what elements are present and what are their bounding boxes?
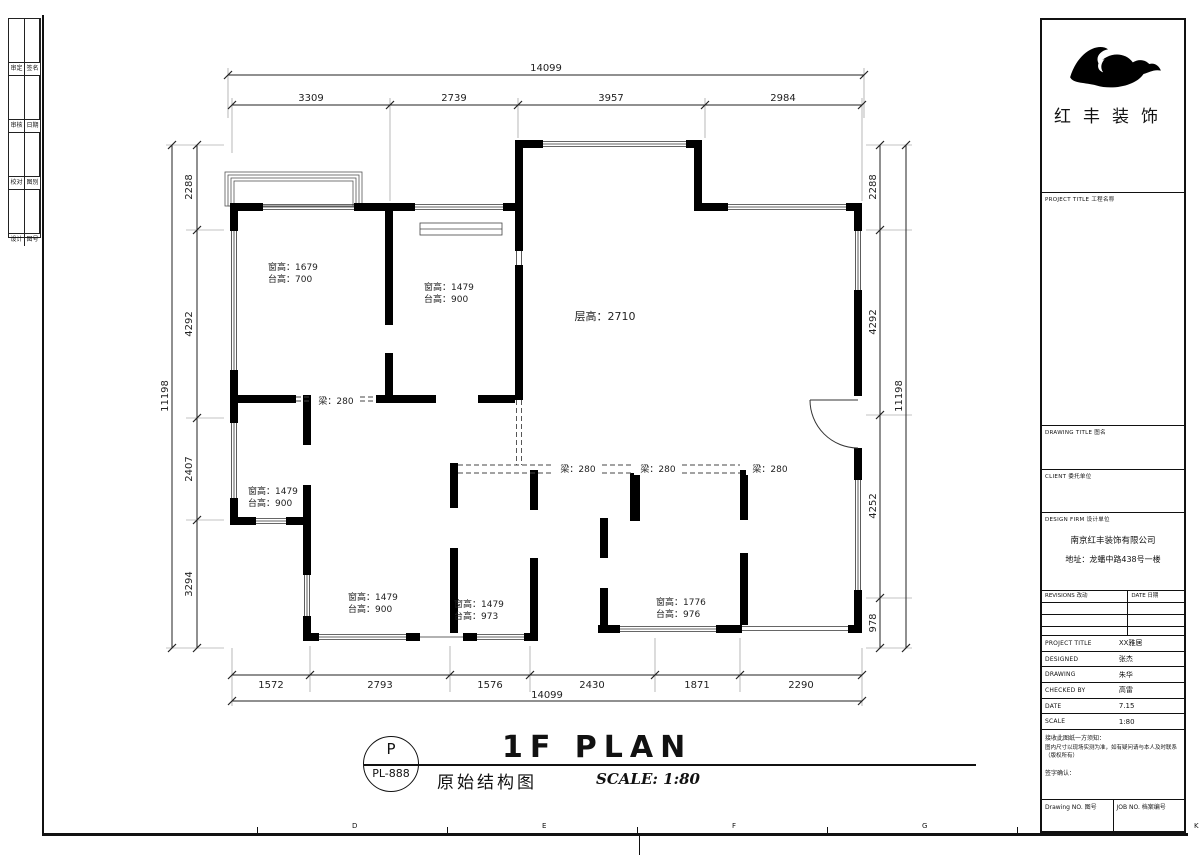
dim-top-1: 2739 bbox=[441, 93, 466, 104]
dim-bottom-3: 2430 bbox=[579, 680, 604, 691]
dim-left-3: 3294 bbox=[184, 571, 195, 596]
title-block: 红丰装饰 PROJECT TITLE 工程名称 DRAWING TITLE 图名… bbox=[1040, 18, 1186, 833]
windows bbox=[232, 142, 861, 640]
design-firm-label: DESIGN FIRM 设计单位 bbox=[1042, 513, 1184, 525]
info-row-label: PROJECT TITLE bbox=[1042, 640, 1119, 647]
room-note-2-l1: 窗高：1479 bbox=[248, 485, 298, 497]
beam-label-2: 梁：280 bbox=[640, 463, 675, 475]
logo-text: 红丰装饰 bbox=[1042, 106, 1180, 129]
dim-top-3: 2984 bbox=[770, 93, 795, 104]
dim-right-overall: 11198 bbox=[894, 380, 905, 412]
info-row-label: DRAWING bbox=[1042, 671, 1119, 678]
dim-bottom-overall: 14099 bbox=[531, 690, 563, 701]
edge-tick bbox=[257, 827, 258, 833]
dim-bottom-0: 1572 bbox=[258, 680, 283, 691]
strip-cell: 图号 bbox=[25, 234, 40, 246]
info-row-value: 高雷 bbox=[1119, 685, 1184, 695]
strip-cell: 图别 bbox=[25, 177, 40, 189]
job-no-label: JOB NO. 档案编号 bbox=[1114, 800, 1185, 831]
room-note-2-l2: 台高：900 bbox=[248, 497, 292, 509]
strip-cell: 签名 bbox=[25, 63, 40, 75]
floor-height-label: 层高：2710 bbox=[575, 309, 636, 323]
dim-right-1: 4292 bbox=[868, 309, 879, 334]
grid-letter: G bbox=[922, 822, 927, 830]
edge-tick bbox=[447, 827, 448, 833]
dim-left-0: 2288 bbox=[184, 174, 195, 199]
walls bbox=[230, 140, 862, 641]
numbers-section: Drawing NO. 图号 JOB NO. 档案编号 bbox=[1042, 800, 1184, 831]
room-note-1-l2: 台高：900 bbox=[424, 293, 468, 305]
dim-left-2: 2407 bbox=[184, 456, 195, 481]
fold-strip-table: 审定签名 审核日期 校对图别 设计图号 bbox=[8, 18, 41, 238]
stamp-number: PL-888 bbox=[364, 761, 418, 787]
dim-top-0: 3309 bbox=[298, 93, 323, 104]
dim-bottom-4: 1871 bbox=[684, 680, 709, 691]
balcony-lines bbox=[225, 172, 362, 206]
drawing-name-cn: 原始结构图 bbox=[437, 768, 537, 793]
room-note-4-l2: 台高：973 bbox=[454, 610, 498, 622]
dim-bottom-5: 2290 bbox=[788, 680, 813, 691]
strip-cell: 审定 bbox=[9, 63, 25, 75]
sheet-bottom-border bbox=[42, 833, 1188, 836]
beam-dashed-lines bbox=[296, 397, 740, 473]
info-row-label: CHECKED BY bbox=[1042, 687, 1119, 694]
stamp-letter: P bbox=[364, 737, 418, 761]
beam-label-3: 梁：280 bbox=[752, 463, 787, 475]
info-row-value: 张杰 bbox=[1119, 654, 1184, 664]
drawing-sheet: 审定签名 审核日期 校对图别 设计图号 D E F G H K bbox=[0, 0, 1200, 856]
strip-cell: 校对 bbox=[9, 177, 25, 189]
edge-tick bbox=[637, 827, 638, 833]
room-notes: 窗高：1679 台高：700 窗高：1479 台高：900 窗高：1479 台高… bbox=[248, 261, 706, 622]
company-address: 地址：龙蟠中路438号一楼 bbox=[1042, 554, 1184, 565]
plan-title: 1F PLAN bbox=[502, 730, 692, 765]
info-row-value: XX雅居 bbox=[1119, 638, 1184, 648]
grid-letter: F bbox=[732, 822, 736, 830]
room-note-4-l1: 窗高：1479 bbox=[454, 598, 504, 610]
design-firm-section: DESIGN FIRM 设计单位 南京红丰装饰有限公司 地址：龙蟠中路438号一… bbox=[1042, 513, 1184, 591]
info-row: CHECKED BY 高雷 bbox=[1042, 683, 1184, 699]
room-note-0-l2: 台高：700 bbox=[268, 273, 312, 285]
info-row: DESIGNED 张杰 bbox=[1042, 652, 1184, 668]
room-note-5-l1: 窗高：1776 bbox=[656, 596, 706, 608]
project-title-section: PROJECT TITLE 工程名称 bbox=[1042, 193, 1184, 426]
room-note-0-l1: 窗高：1679 bbox=[268, 261, 318, 273]
room-note-5-l2: 台高：976 bbox=[656, 608, 700, 620]
note-line-1: 接收此图纸一方须知： bbox=[1045, 733, 1181, 742]
info-row: DRAWING 朱华 bbox=[1042, 667, 1184, 683]
info-row-value: 7.15 bbox=[1119, 702, 1184, 710]
drawing-no-label: Drawing NO. 图号 bbox=[1042, 800, 1114, 831]
fold-mark bbox=[639, 833, 640, 855]
logo-section: 红丰装饰 bbox=[1042, 20, 1184, 193]
beam-label-1: 梁：280 bbox=[560, 463, 595, 475]
beam-label-0: 梁：280 bbox=[318, 395, 353, 407]
grid-letter: E bbox=[542, 822, 546, 830]
company-name: 南京红丰装饰有限公司 bbox=[1042, 534, 1184, 546]
drawing-title-section: DRAWING TITLE 图名 bbox=[1042, 426, 1184, 470]
floor-plan: 14099 3309 2739 3957 2984 1572 2793 1576… bbox=[158, 58, 938, 722]
dim-right-2: 4252 bbox=[868, 493, 879, 518]
edge-tick bbox=[827, 827, 828, 833]
beam-labels: 梁：280 梁：280 梁：280 梁：280 bbox=[312, 395, 794, 475]
sheet-left-border bbox=[42, 15, 44, 836]
room-note-1-l1: 窗高：1479 bbox=[424, 281, 474, 293]
info-row: SCALE 1:80 bbox=[1042, 714, 1184, 729]
plan-scale: SCALE: 1:80 bbox=[596, 770, 700, 788]
strip-cell: 审核 bbox=[9, 120, 25, 132]
dim-right-0: 2288 bbox=[868, 174, 879, 199]
drawing-title-label: DRAWING TITLE 图名 bbox=[1042, 426, 1184, 438]
company-logo-bird-icon bbox=[1061, 36, 1165, 102]
info-row-value: 1:80 bbox=[1119, 718, 1184, 726]
revisions-section: REVISIONS 改动 DATE 日期 bbox=[1042, 591, 1184, 636]
revisions-date-label: DATE 日期 bbox=[1128, 591, 1184, 602]
edge-tick bbox=[1017, 827, 1018, 833]
dim-right-3: 978 bbox=[868, 613, 879, 632]
dim-bottom-1: 2793 bbox=[367, 680, 392, 691]
client-label: CLIENT 委托单位 bbox=[1042, 470, 1184, 482]
info-row-label: DESIGNED bbox=[1042, 656, 1119, 663]
strip-cell: 设计 bbox=[9, 234, 25, 246]
project-title-label: PROJECT TITLE 工程名称 bbox=[1042, 193, 1184, 205]
room-note-3-l2: 台高：900 bbox=[348, 603, 392, 615]
revisions-label: REVISIONS 改动 bbox=[1042, 591, 1128, 602]
info-rows-section: PROJECT TITLE XX雅居 DESIGNED 张杰 DRAWING 朱… bbox=[1042, 636, 1184, 730]
grid-letter: D bbox=[352, 822, 357, 830]
dim-top-2: 3957 bbox=[598, 93, 623, 104]
info-row-label: SCALE bbox=[1042, 718, 1119, 725]
room-note-3-l1: 窗高：1479 bbox=[348, 591, 398, 603]
dimension-lines bbox=[172, 75, 906, 701]
dim-top-overall: 14099 bbox=[530, 63, 562, 74]
high-window bbox=[420, 223, 502, 235]
info-row-label: DATE bbox=[1042, 703, 1119, 710]
floor-plan-svg: 14099 3309 2739 3957 2984 1572 2793 1576… bbox=[158, 58, 938, 718]
dim-bottom-2: 1576 bbox=[477, 680, 502, 691]
dim-left-1: 4292 bbox=[184, 311, 195, 336]
entry-door-arc bbox=[810, 400, 858, 448]
strip-cell: 日期 bbox=[25, 120, 40, 132]
info-row-value: 朱华 bbox=[1119, 670, 1184, 680]
info-row: DATE 7.15 bbox=[1042, 699, 1184, 715]
extension-lines bbox=[166, 68, 912, 706]
drawing-stamp: P PL-888 bbox=[363, 736, 419, 792]
dim-left-overall: 11198 bbox=[160, 380, 171, 412]
info-row: PROJECT TITLE XX雅居 bbox=[1042, 636, 1184, 652]
note-section: 接收此图纸一方须知： 图内尺寸以现场实测为准，如有疑问请与本人及时联系（版权所有… bbox=[1042, 730, 1184, 800]
grid-letter: K bbox=[1194, 822, 1199, 830]
note-line-3: 签字确认： bbox=[1045, 768, 1181, 777]
client-section: CLIENT 委托单位 bbox=[1042, 470, 1184, 513]
note-line-2: 图内尺寸以现场实测为准，如有疑问请与本人及时联系（版权所有） bbox=[1045, 744, 1181, 761]
dimension-ticks bbox=[168, 71, 910, 705]
